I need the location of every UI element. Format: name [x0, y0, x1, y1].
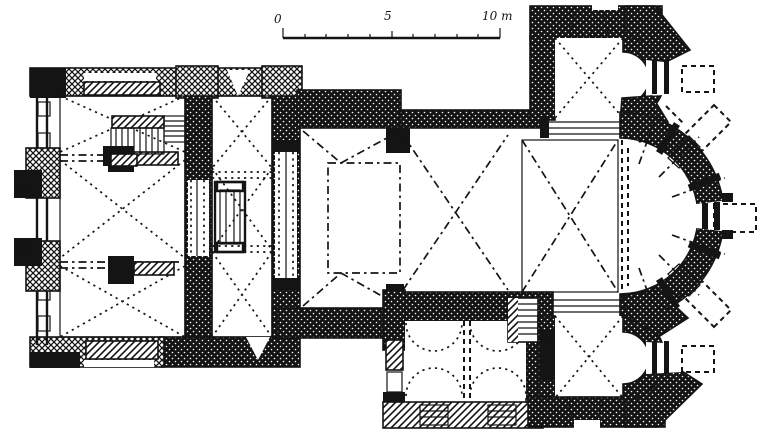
south-apse-window-dashed: [682, 346, 714, 372]
nave-north-wall-east: [400, 110, 540, 128]
chancel-staircase: [508, 298, 538, 342]
south-arch-hatch: [86, 341, 158, 359]
church-floor-plan-drawing: [0, 0, 764, 437]
sacristy-south-wall: [383, 402, 543, 428]
north-chapel-west-wall: [530, 36, 555, 120]
nave-vault-ribs: [303, 131, 618, 306]
north-apse-window-dashed: [682, 66, 714, 92]
south-chapel-steps: [548, 300, 624, 312]
nave-south-wall-west: [277, 308, 397, 338]
hall-pier-lower: [108, 256, 174, 284]
tower-vault-ribs: [212, 96, 272, 337]
northwest-corner-pier: [30, 68, 66, 98]
west-block: [14, 66, 302, 368]
scale-bar-start-label: 0: [274, 12, 282, 26]
nave-north-wall-west: [297, 90, 401, 128]
gallery-arch-hatch: [84, 82, 160, 95]
west-north-wall: [30, 68, 300, 96]
floor-plan-scan: 0 5 10 m: [0, 0, 764, 437]
west-buttress-upper: [14, 170, 42, 198]
west-buttress-lower: [14, 238, 42, 266]
earlier-plan-outline: [328, 163, 400, 273]
scale-bar-end-label: 10 m: [482, 9, 512, 23]
nave: [277, 90, 628, 338]
west-portal: [215, 182, 245, 252]
scale-bar-line: [283, 28, 500, 38]
scale-bar-mid-label: 5: [384, 9, 392, 23]
